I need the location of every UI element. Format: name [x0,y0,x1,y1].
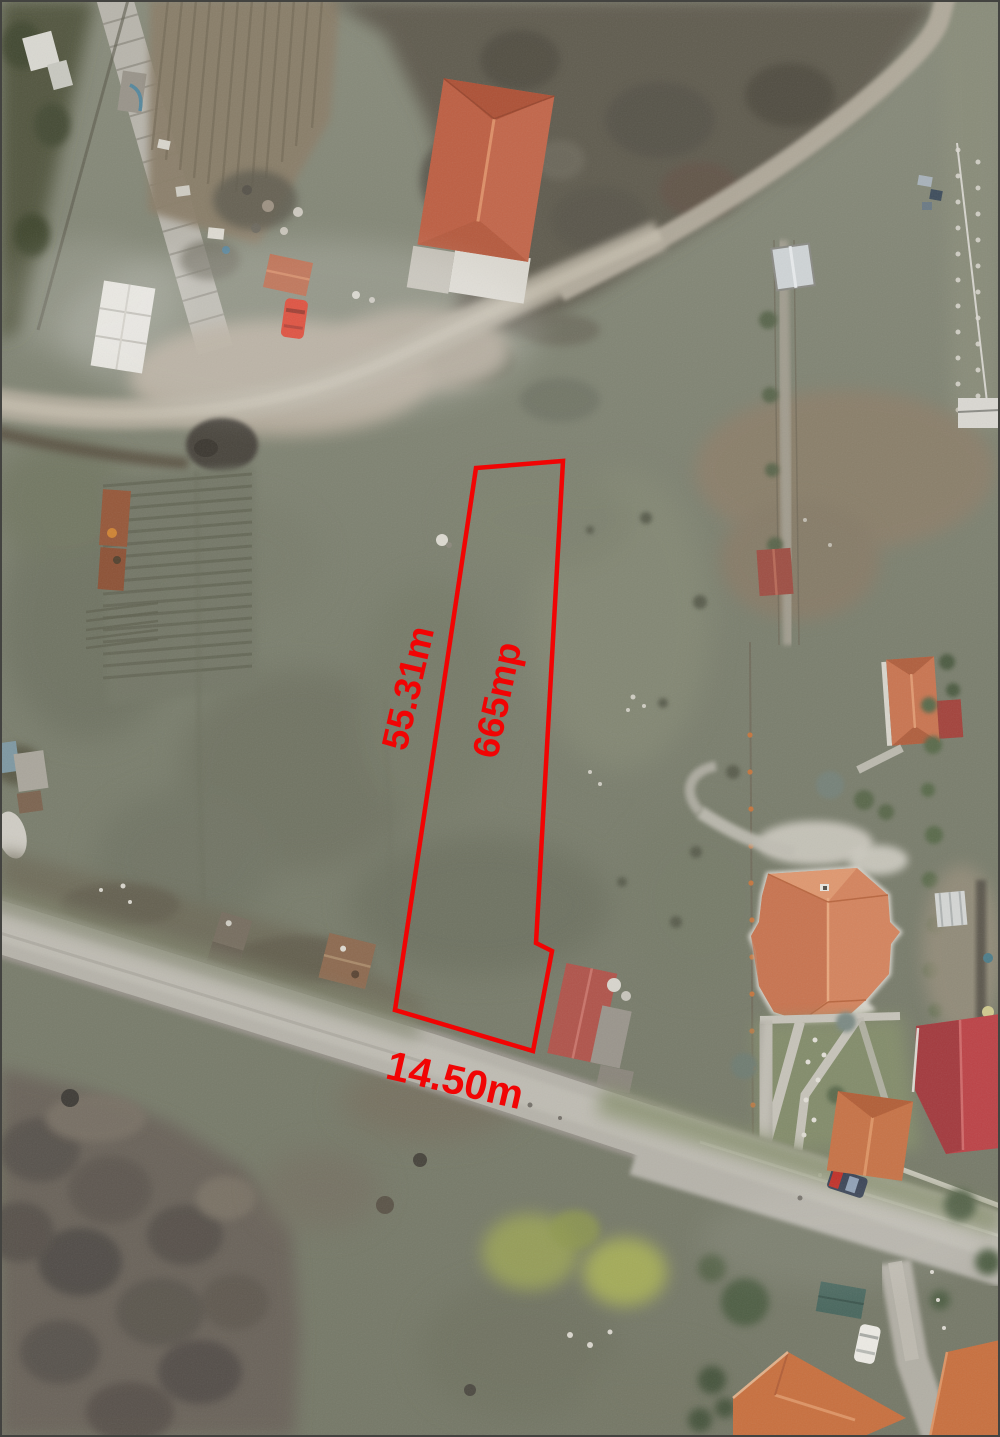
aerial-photo-svg: 55.31m 665mp 14.50m [0,0,1000,1437]
aerial-parcel-photo: 55.31m 665mp 14.50m [0,0,1000,1437]
